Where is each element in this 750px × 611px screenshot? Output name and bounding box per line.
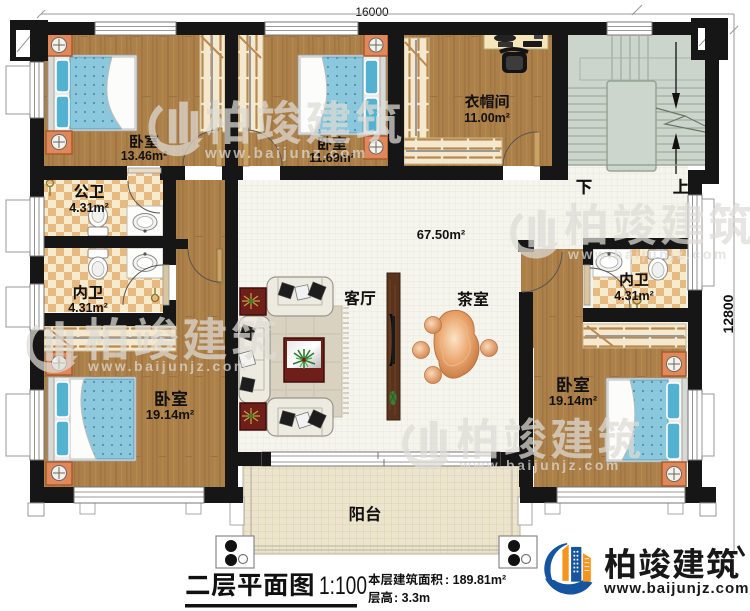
svg-text:www.baijunz.com: www.baijunz.com	[204, 145, 368, 162]
svg-text:67.50m²: 67.50m²	[417, 227, 466, 242]
svg-text:19.14m²: 19.14m²	[549, 393, 598, 408]
svg-text:11.00m²: 11.00m²	[464, 111, 510, 125]
svg-text:1:100: 1:100	[319, 572, 367, 600]
svg-text:www.baijunjz.com: www.baijunjz.com	[567, 246, 729, 262]
svg-text:12800: 12800	[720, 294, 736, 333]
svg-text:4.31m²: 4.31m²	[68, 301, 108, 315]
svg-text:4.31m²: 4.31m²	[614, 289, 654, 303]
svg-text:16000: 16000	[355, 5, 389, 19]
svg-text:www.baijunjz.com: www.baijunjz.com	[87, 358, 249, 374]
svg-text:4.31m²: 4.31m²	[69, 201, 109, 215]
svg-text:19.14m²: 19.14m²	[146, 407, 195, 422]
svg-text:www.baijunjz.com: www.baijunjz.com	[603, 580, 749, 597]
svg-text:: 3.3m: : 3.3m	[394, 591, 430, 605]
svg-text:www.baijunjz.com: www.baijunjz.com	[459, 457, 621, 473]
svg-text:: 189.81m²: : 189.81m²	[445, 573, 506, 587]
svg-text:13.46m²: 13.46m²	[121, 149, 168, 163]
